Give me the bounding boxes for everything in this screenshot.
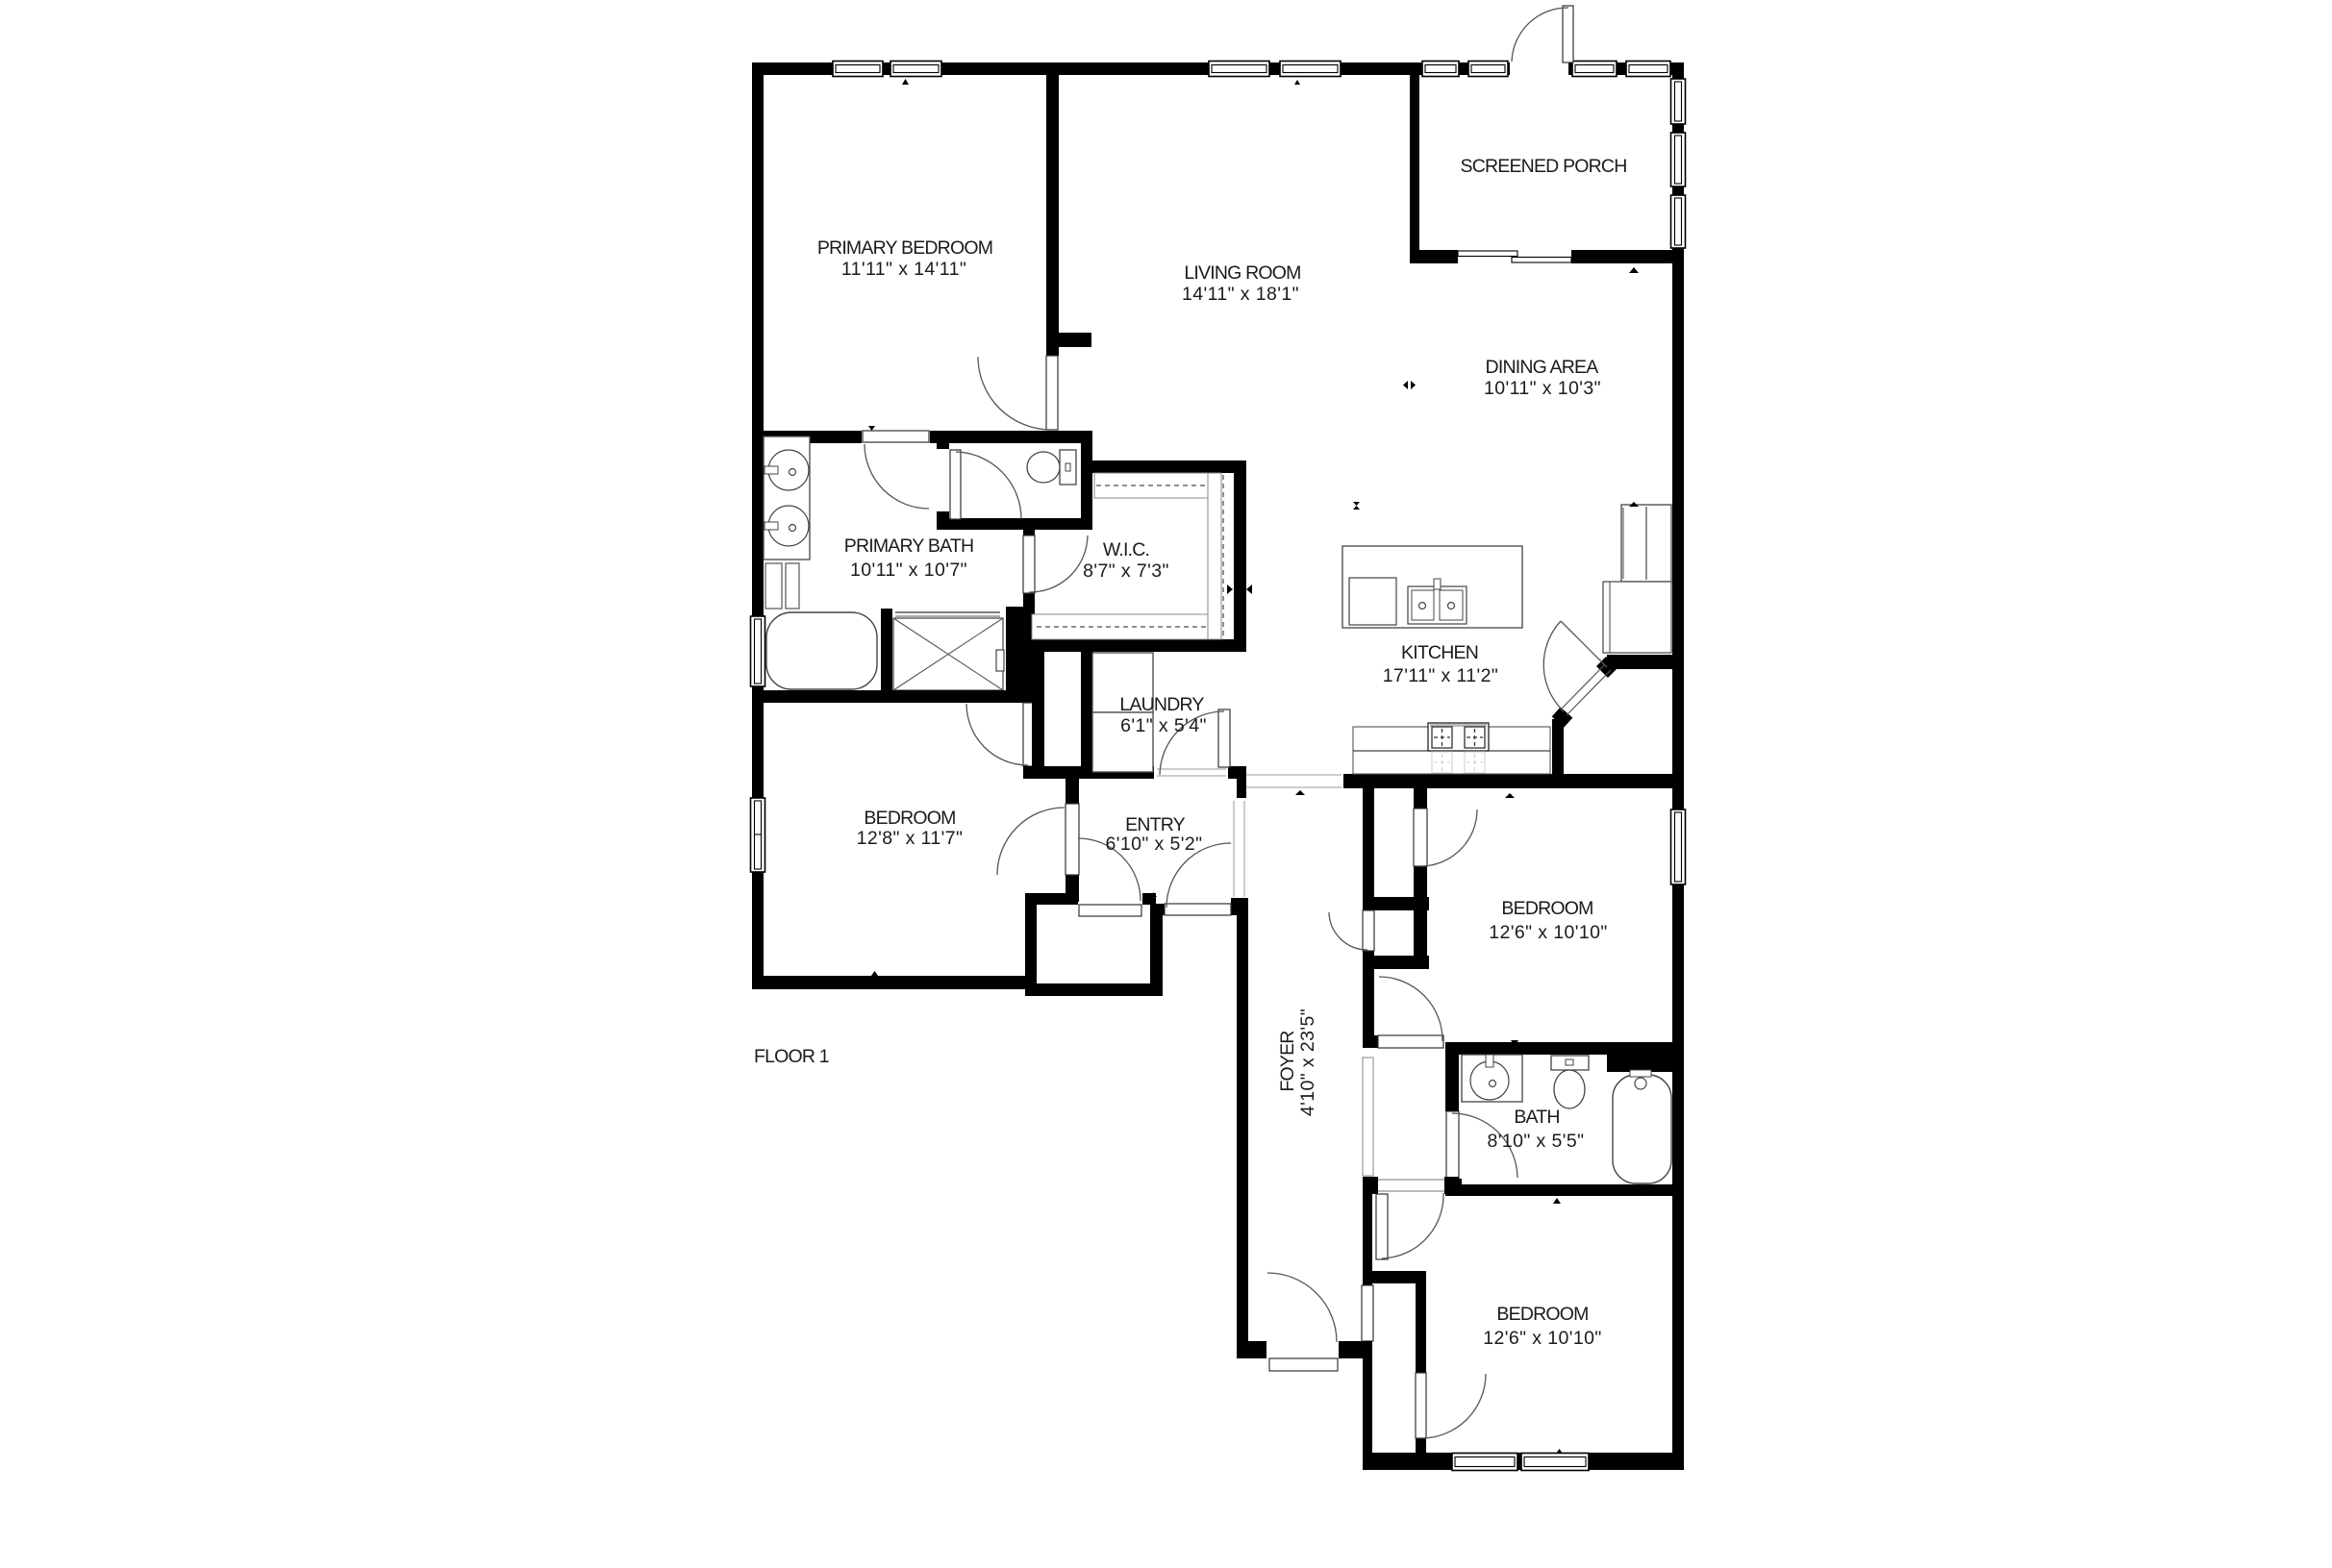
- svg-text:8'10" x 5'5": 8'10" x 5'5": [1488, 1131, 1585, 1152]
- svg-text:BEDROOM: BEDROOM: [1501, 898, 1592, 919]
- svg-text:11'11" x 14'11": 11'11" x 14'11": [841, 259, 966, 280]
- svg-text:12'8" x 11'7": 12'8" x 11'7": [857, 828, 964, 849]
- svg-text:8'7" x 7'3": 8'7" x 7'3": [1083, 560, 1169, 582]
- svg-text:KITCHEN: KITCHEN: [1401, 642, 1478, 663]
- svg-text:4'10" x 23'5": 4'10" x 23'5": [1297, 1008, 1318, 1116]
- svg-text:10'11" x 10'7": 10'11" x 10'7": [850, 560, 967, 581]
- svg-text:BEDROOM: BEDROOM: [864, 808, 955, 829]
- svg-text:LIVING ROOM: LIVING ROOM: [1184, 262, 1300, 284]
- svg-text:ENTRY: ENTRY: [1125, 814, 1186, 835]
- svg-text:BATH: BATH: [1514, 1107, 1559, 1128]
- svg-text:W.I.C.: W.I.C.: [1103, 539, 1149, 560]
- svg-text:PRIMARY BATH: PRIMARY BATH: [844, 535, 974, 557]
- svg-text:6'1" x 5'4": 6'1" x 5'4": [1120, 715, 1207, 736]
- svg-text:PRIMARY BEDROOM: PRIMARY BEDROOM: [817, 237, 992, 259]
- svg-text:6'10" x 5'2": 6'10" x 5'2": [1106, 834, 1203, 855]
- svg-text:17'11" x 11'2": 17'11" x 11'2": [1383, 665, 1499, 686]
- svg-text:FLOOR 1: FLOOR 1: [754, 1046, 829, 1067]
- svg-text:DINING AREA: DINING AREA: [1486, 357, 1599, 378]
- svg-text:SCREENED PORCH: SCREENED PORCH: [1461, 156, 1627, 177]
- svg-text:BEDROOM: BEDROOM: [1496, 1304, 1588, 1325]
- svg-text:10'11" x 10'3": 10'11" x 10'3": [1484, 378, 1601, 399]
- svg-text:FOYER: FOYER: [1277, 1031, 1298, 1092]
- svg-text:14'11" x 18'1": 14'11" x 18'1": [1182, 284, 1299, 305]
- svg-text:12'6" x 10'10": 12'6" x 10'10": [1483, 1328, 1601, 1349]
- svg-text:12'6" x 10'10": 12'6" x 10'10": [1489, 922, 1607, 943]
- svg-text:LAUNDRY: LAUNDRY: [1119, 694, 1204, 715]
